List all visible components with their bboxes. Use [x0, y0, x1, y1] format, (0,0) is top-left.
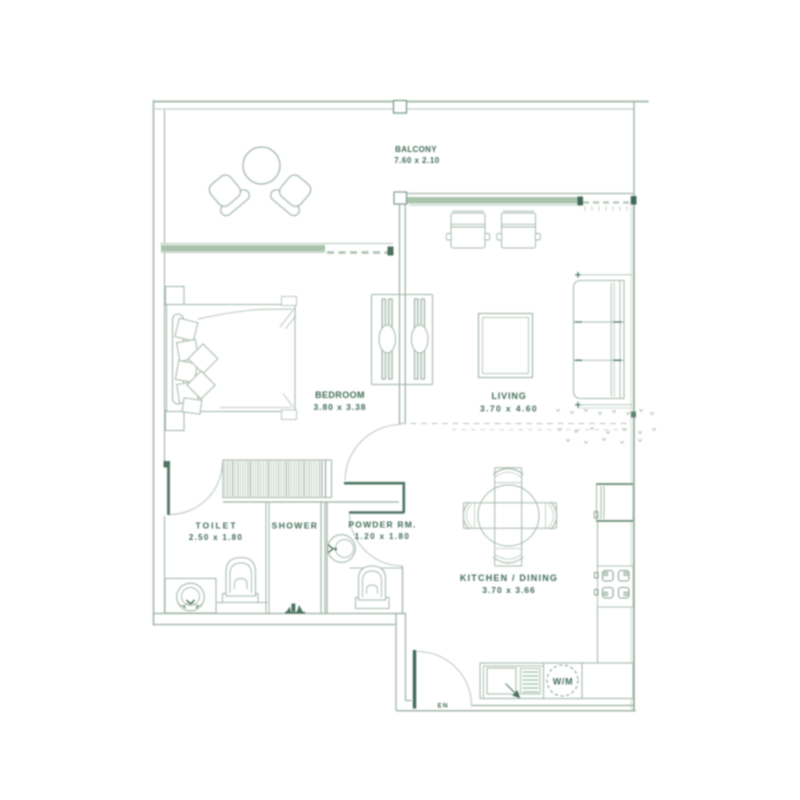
svg-text:EN: EN — [437, 703, 448, 710]
svg-text:3.80 x 3.38: 3.80 x 3.38 — [314, 402, 367, 412]
svg-text:BALCONY: BALCONY — [395, 145, 437, 154]
svg-text:KITCHEN / DINING: KITCHEN / DINING — [460, 573, 558, 583]
svg-text:BEDROOM: BEDROOM — [315, 390, 365, 400]
svg-text:LIVING: LIVING — [491, 391, 526, 401]
svg-text:3.70 x 4.60: 3.70 x 4.60 — [480, 404, 538, 414]
svg-text:3.70 x 3.66: 3.70 x 3.66 — [482, 585, 536, 595]
svg-text:2.50 x 1.80: 2.50 x 1.80 — [189, 533, 243, 542]
svg-text:W/M: W/M — [553, 677, 574, 687]
svg-text:1.20 x 1.80: 1.20 x 1.80 — [355, 532, 410, 541]
svg-text:TOILET: TOILET — [195, 521, 237, 531]
svg-text:7.60 x 2.10: 7.60 x 2.10 — [394, 156, 440, 165]
svg-text:POWDER RM.: POWDER RM. — [348, 520, 416, 530]
svg-text:SHOWER: SHOWER — [272, 521, 319, 531]
